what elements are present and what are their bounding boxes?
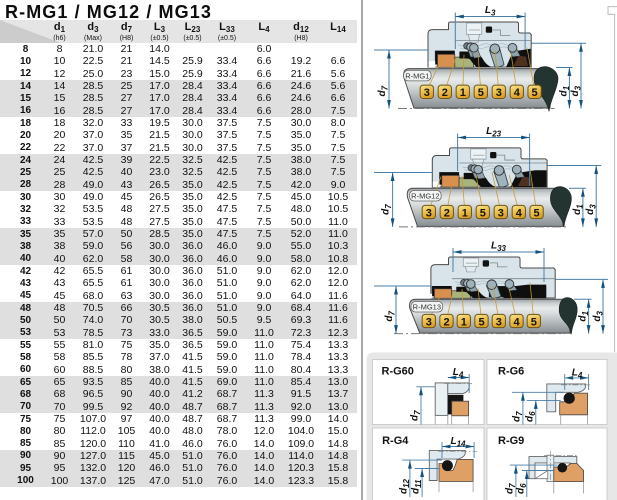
svg-text:3: 3 xyxy=(496,316,502,328)
svg-text:R-MG13: R-MG13 xyxy=(413,303,441,312)
svg-text:5: 5 xyxy=(531,316,537,328)
svg-text:d3: d3 xyxy=(570,85,583,96)
svg-text:d7: d7 xyxy=(384,310,397,321)
svg-text:4: 4 xyxy=(513,316,520,328)
svg-text:2: 2 xyxy=(442,87,448,99)
svg-text:R-MG12: R-MG12 xyxy=(411,192,439,201)
svg-text:R-G6: R-G6 xyxy=(498,366,524,378)
svg-text:3: 3 xyxy=(496,87,502,99)
svg-text:d3: d3 xyxy=(592,310,605,321)
svg-text:5: 5 xyxy=(480,207,486,219)
svg-text:5: 5 xyxy=(534,207,540,219)
svg-text:1: 1 xyxy=(461,316,467,328)
svg-text:3: 3 xyxy=(424,87,430,99)
svg-text:3: 3 xyxy=(426,207,432,219)
svg-text:5: 5 xyxy=(478,316,484,328)
svg-text:R-G60: R-G60 xyxy=(382,366,414,378)
svg-text:L23: L23 xyxy=(486,126,502,139)
svg-text:1: 1 xyxy=(462,207,468,219)
svg-text:L33: L33 xyxy=(491,241,507,254)
svg-text:d1: d1 xyxy=(578,310,591,321)
svg-text:1: 1 xyxy=(460,87,466,99)
svg-text:L3: L3 xyxy=(485,5,496,18)
svg-text:d7: d7 xyxy=(381,204,394,215)
svg-text:R-MG1: R-MG1 xyxy=(405,71,429,80)
svg-text:5: 5 xyxy=(478,87,484,99)
svg-text:3: 3 xyxy=(426,316,432,328)
svg-text:d1: d1 xyxy=(572,204,585,215)
svg-text:d7: d7 xyxy=(377,85,390,96)
svg-text:2: 2 xyxy=(444,207,450,219)
svg-text:4: 4 xyxy=(514,87,521,99)
svg-text:R-G4: R-G4 xyxy=(382,435,409,447)
svg-text:5: 5 xyxy=(532,87,538,99)
svg-text:4: 4 xyxy=(516,207,523,219)
svg-text:d3: d3 xyxy=(585,204,598,215)
svg-text:2: 2 xyxy=(443,316,449,328)
svg-text:R-G9: R-G9 xyxy=(498,435,524,447)
svg-text:3: 3 xyxy=(498,207,504,219)
